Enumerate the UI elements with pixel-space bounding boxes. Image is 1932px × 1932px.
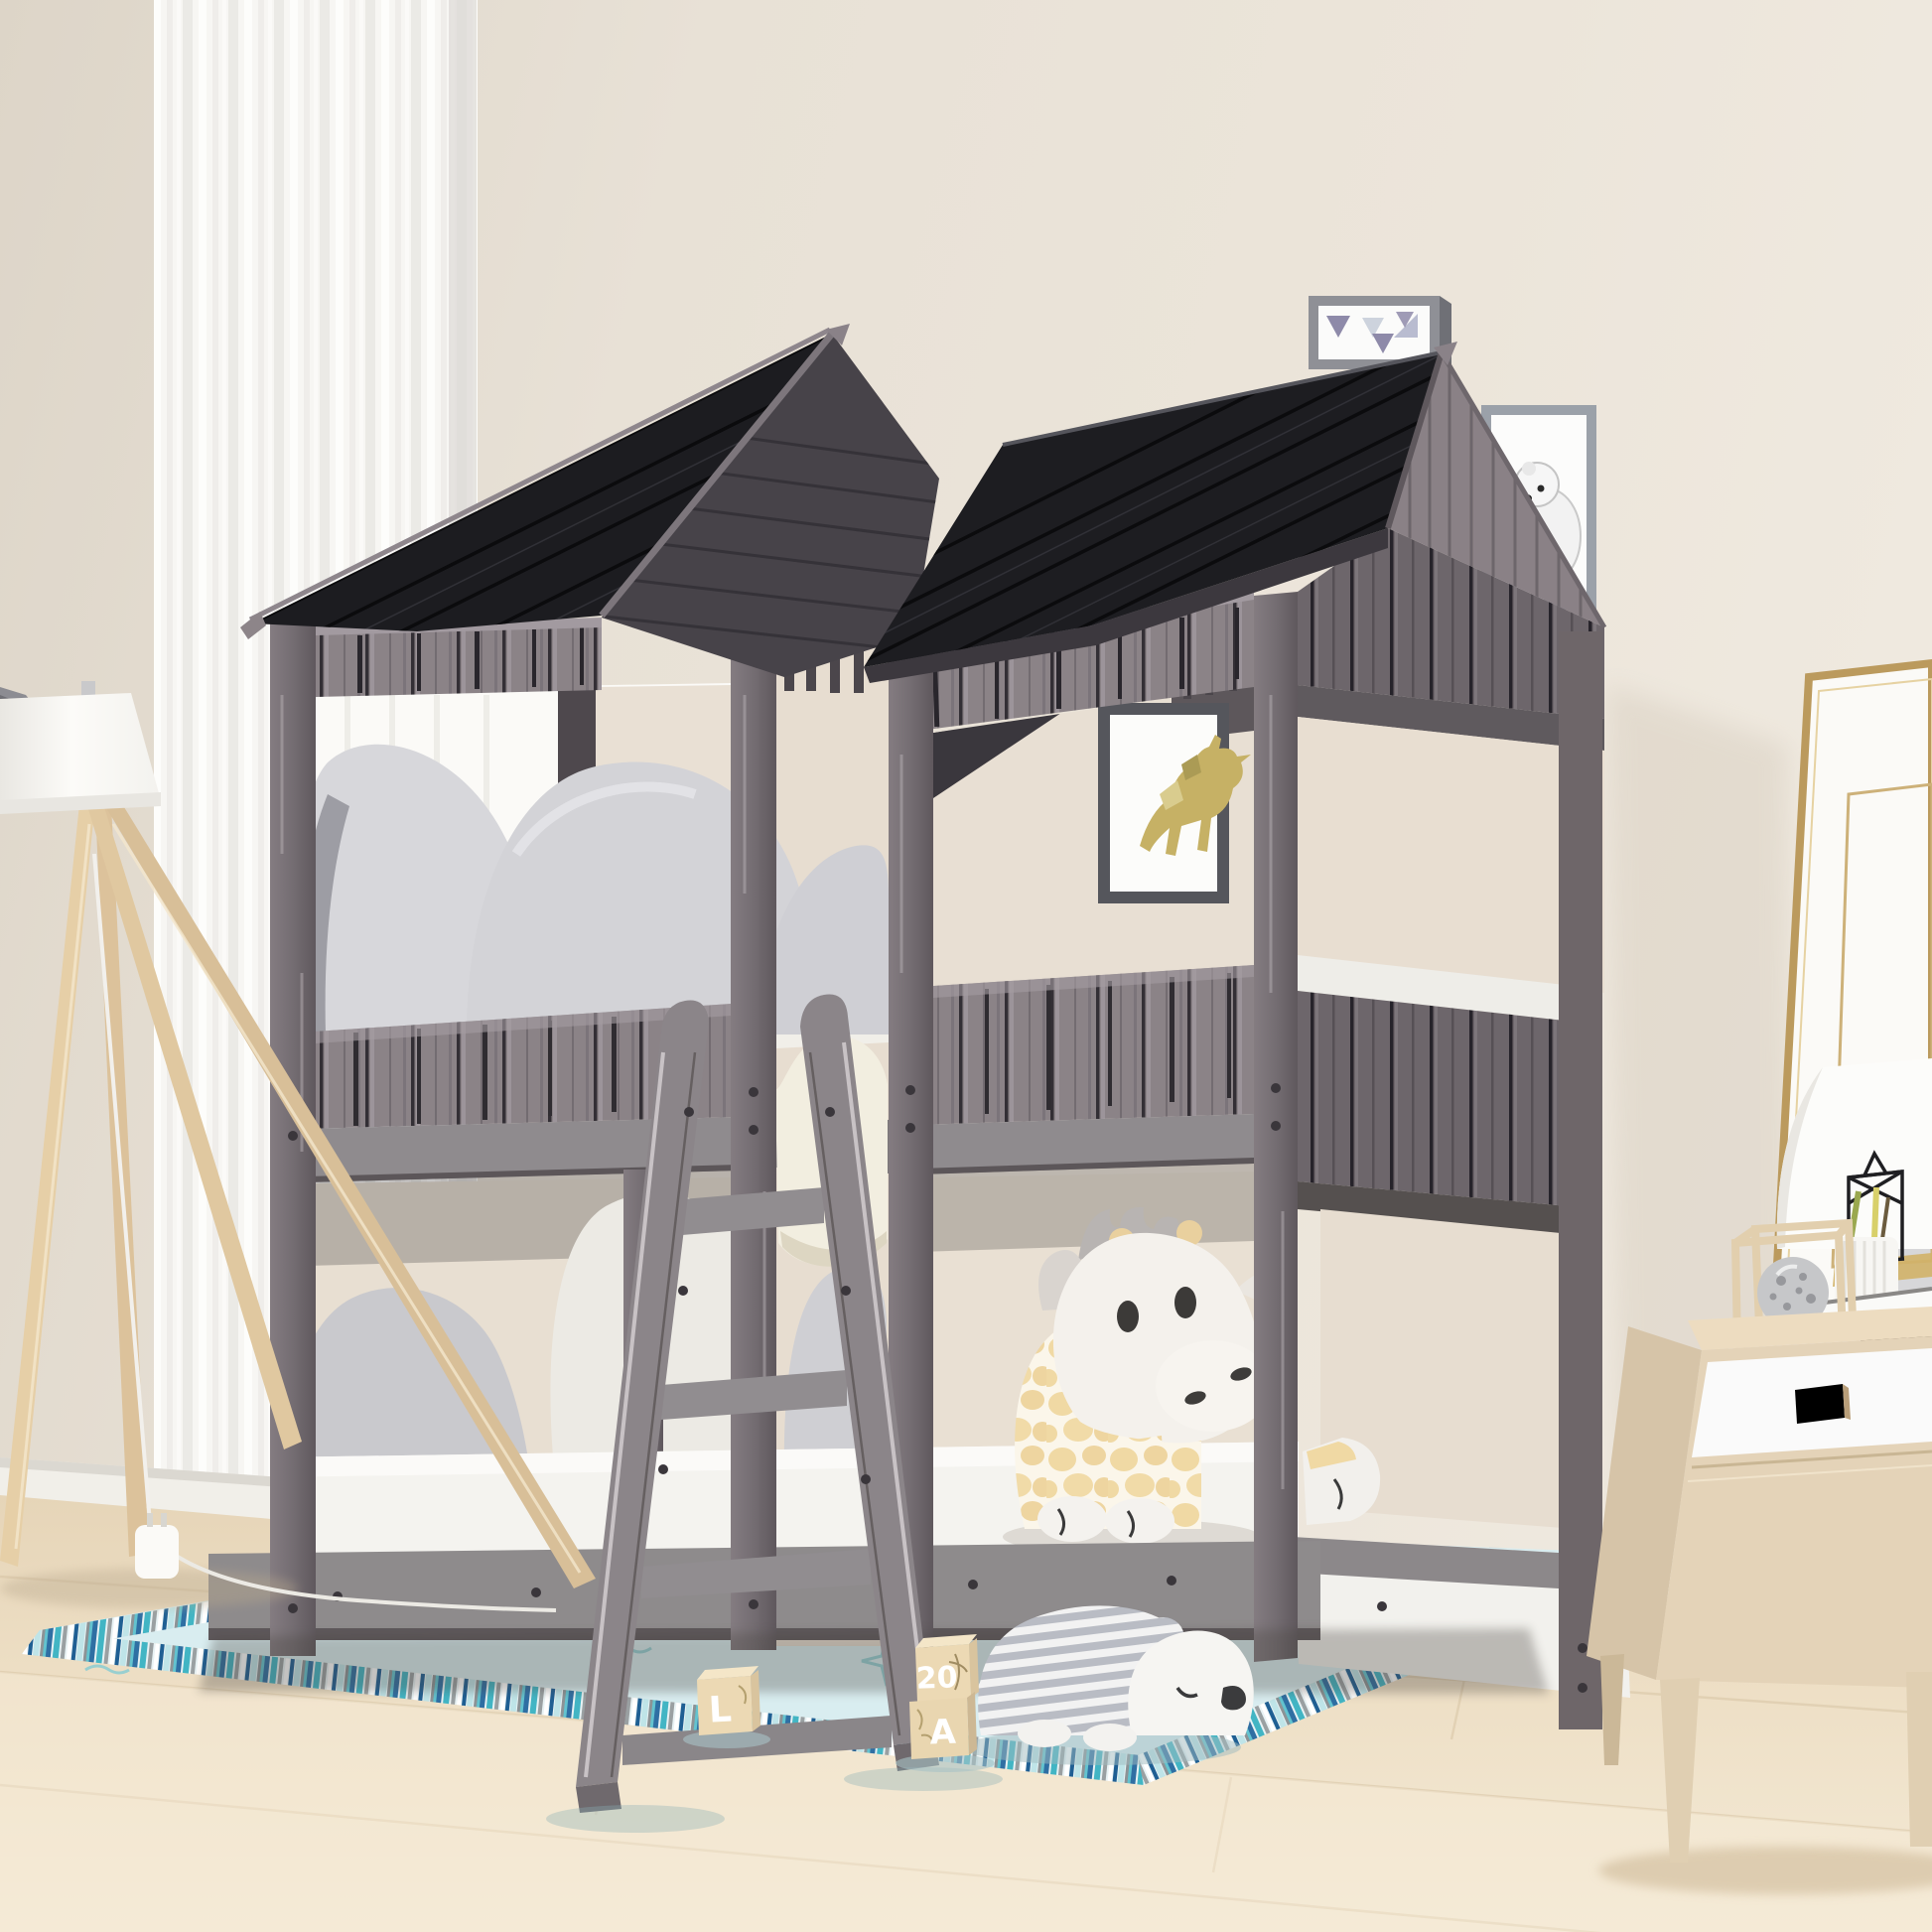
- left-house-top-band: [316, 618, 602, 697]
- giraffe-muzzle: [1156, 1340, 1271, 1432]
- toy-block-l: L: [697, 1666, 760, 1735]
- toy-block-20: 20: [915, 1634, 979, 1702]
- rear-right-post: [1559, 631, 1602, 1729]
- right-house-railing: [889, 965, 1254, 1126]
- under-bed-shadow: [199, 1628, 1549, 1694]
- bed-right-side-section: [1298, 528, 1604, 1531]
- scene-canvas: L 20 A: [0, 0, 1932, 1932]
- block-letter-a: A: [929, 1713, 957, 1753]
- bedroom-photo: L 20 A: [0, 0, 1932, 1932]
- drawer-knob: [1795, 1384, 1845, 1424]
- bear-tail: [978, 1675, 1008, 1705]
- toy-block-a: A: [909, 1692, 977, 1759]
- lamp-finial: [81, 681, 95, 697]
- side-guard-rail: [1298, 991, 1600, 1209]
- block-letter-l: L: [708, 1689, 733, 1730]
- nightstand-leg-right: [1906, 1672, 1932, 1847]
- block-number-20: 20: [915, 1660, 958, 1696]
- lamp-plug: [135, 1525, 179, 1579]
- wall-art-deer: [1098, 703, 1251, 903]
